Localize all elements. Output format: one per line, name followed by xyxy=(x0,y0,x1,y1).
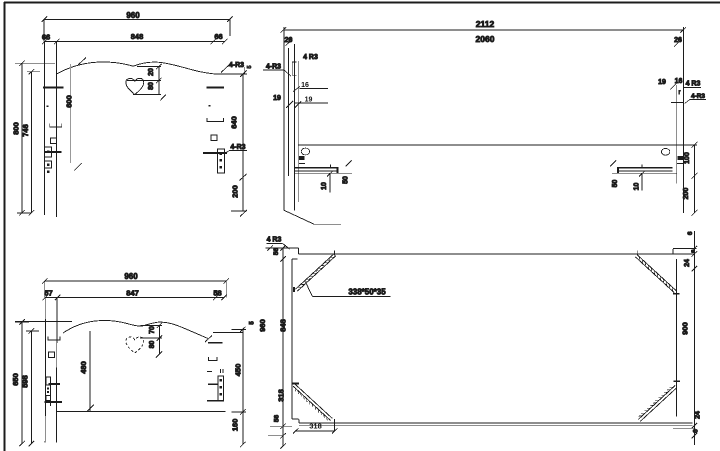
svg-text:4 R3: 4 R3 xyxy=(267,237,282,244)
svg-text:640: 640 xyxy=(230,116,239,129)
svg-text:318: 318 xyxy=(309,422,322,431)
svg-text:848: 848 xyxy=(279,319,288,332)
svg-text:57: 57 xyxy=(44,289,52,298)
svg-text:66: 66 xyxy=(214,32,222,41)
svg-text:100: 100 xyxy=(684,152,691,164)
svg-text:2060: 2060 xyxy=(476,34,495,44)
svg-text:r: r xyxy=(679,90,681,96)
svg-text:4 R3: 4 R3 xyxy=(303,54,318,61)
svg-text:600: 600 xyxy=(65,95,74,108)
svg-text:6: 6 xyxy=(687,231,694,235)
svg-text:50: 50 xyxy=(343,176,350,184)
svg-text:4-R3: 4-R3 xyxy=(691,93,705,100)
svg-text:4 R3: 4 R3 xyxy=(686,81,701,88)
svg-text:6: 6 xyxy=(693,429,700,433)
svg-text:80: 80 xyxy=(149,341,156,349)
svg-text:848: 848 xyxy=(131,32,144,41)
svg-text:800: 800 xyxy=(12,122,21,135)
svg-text:5: 5 xyxy=(247,65,253,68)
svg-text:4-R3: 4-R3 xyxy=(230,144,245,151)
svg-text:900: 900 xyxy=(681,322,690,335)
svg-text:338*50*35: 338*50*35 xyxy=(348,288,386,297)
svg-text:56: 56 xyxy=(273,248,280,256)
svg-text:318: 318 xyxy=(277,389,286,402)
svg-text:26: 26 xyxy=(285,37,293,44)
svg-text:847: 847 xyxy=(126,289,139,298)
svg-text:960: 960 xyxy=(258,319,267,332)
svg-text:16: 16 xyxy=(301,82,309,89)
svg-text:10: 10 xyxy=(321,182,328,190)
svg-text:450: 450 xyxy=(234,364,243,377)
svg-text:20: 20 xyxy=(148,68,155,76)
svg-text:650: 650 xyxy=(11,373,20,386)
svg-text:58: 58 xyxy=(213,289,221,298)
svg-text:80: 80 xyxy=(148,82,155,90)
svg-text:70: 70 xyxy=(149,326,156,334)
svg-text:19: 19 xyxy=(273,95,281,102)
svg-text:598: 598 xyxy=(21,375,30,388)
svg-text:19: 19 xyxy=(305,97,313,104)
svg-text:4-R3: 4-R3 xyxy=(266,64,281,71)
svg-text:160: 160 xyxy=(231,419,240,432)
svg-text:200: 200 xyxy=(231,185,240,198)
svg-text:26: 26 xyxy=(674,37,682,44)
svg-text:50: 50 xyxy=(612,180,619,188)
svg-text:19: 19 xyxy=(658,79,666,86)
svg-text:200: 200 xyxy=(683,188,690,200)
svg-text:4-R3: 4-R3 xyxy=(229,62,244,69)
svg-text:66: 66 xyxy=(42,33,50,42)
svg-text:10: 10 xyxy=(634,183,641,191)
svg-text:480: 480 xyxy=(79,361,88,374)
svg-text:960: 960 xyxy=(126,11,140,20)
svg-text:56: 56 xyxy=(273,415,280,423)
svg-text:746: 746 xyxy=(21,124,30,137)
svg-text:24: 24 xyxy=(684,259,691,267)
svg-text:2112: 2112 xyxy=(476,19,495,29)
svg-text:24: 24 xyxy=(695,411,702,419)
svg-text:960: 960 xyxy=(124,272,138,281)
